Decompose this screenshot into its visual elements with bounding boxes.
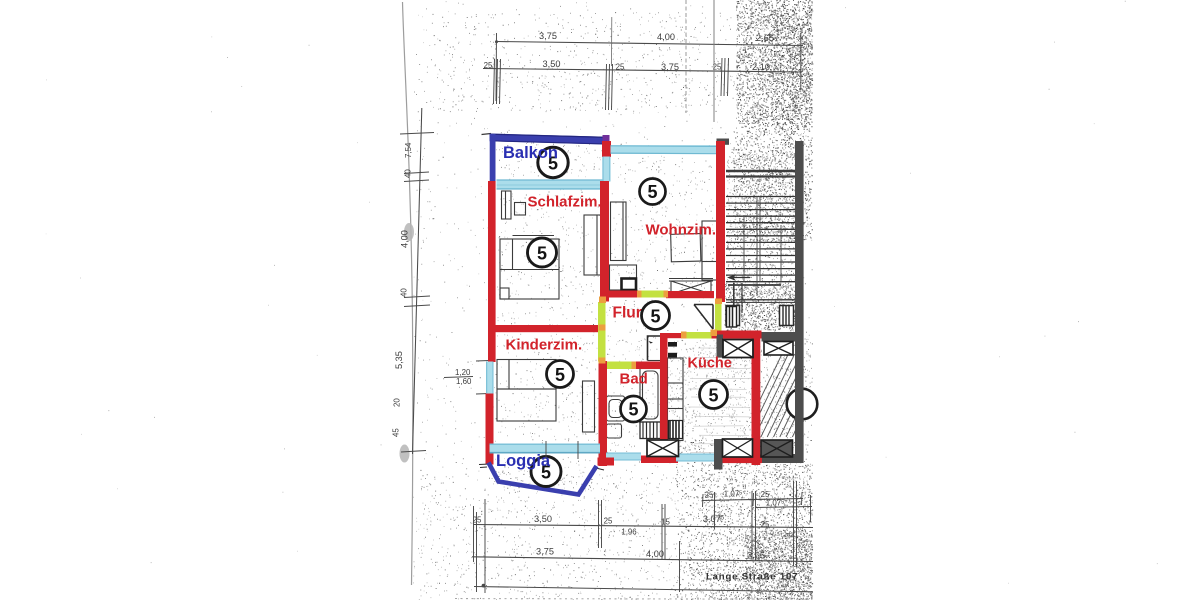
svg-text:Bad: Bad	[620, 371, 648, 388]
svg-text:5: 5	[537, 244, 547, 264]
svg-text:5: 5	[555, 365, 565, 385]
svg-text:1,96: 1,96	[621, 528, 637, 537]
svg-text:2,65: 2,65	[756, 33, 774, 43]
svg-text:Kinderzim.: Kinderzim.	[506, 337, 583, 354]
svg-text:Loggia: Loggia	[496, 452, 551, 470]
svg-text:3,75: 3,75	[536, 547, 554, 557]
svg-text:5: 5	[647, 182, 657, 202]
svg-text:2,65: 2,65	[747, 551, 765, 561]
svg-text:25: 25	[705, 491, 714, 500]
svg-text:4,00: 4,00	[657, 32, 675, 42]
svg-text:Balkon: Balkon	[503, 144, 558, 162]
svg-text:45: 45	[392, 428, 401, 437]
svg-text:5: 5	[650, 307, 660, 327]
svg-text:15: 15	[661, 518, 670, 527]
svg-text:20: 20	[393, 398, 402, 407]
svg-text:3,50: 3,50	[543, 59, 561, 69]
svg-text:Lange Straße 107: Lange Straße 107	[706, 572, 798, 583]
svg-text:5,35: 5,35	[394, 351, 404, 369]
svg-text:25: 25	[604, 517, 613, 526]
svg-text:2,10: 2,10	[752, 62, 770, 72]
svg-text:3,75: 3,75	[661, 62, 679, 72]
svg-text:25: 25	[761, 520, 770, 529]
svg-text:Wohnzim.: Wohnzim.	[646, 222, 717, 239]
svg-text:1,20: 1,20	[455, 368, 471, 377]
svg-text:25: 25	[616, 63, 625, 72]
svg-text:1,60: 1,60	[456, 377, 472, 386]
svg-text:40: 40	[400, 288, 409, 297]
svg-text:Flur: Flur	[613, 305, 642, 322]
svg-text:25: 25	[473, 516, 482, 525]
svg-text:3,50: 3,50	[534, 514, 552, 524]
svg-text:25: 25	[484, 61, 493, 70]
svg-text:4,00: 4,00	[400, 230, 410, 248]
svg-text:40: 40	[404, 169, 413, 178]
svg-text:Schlafzim.: Schlafzim.	[528, 194, 602, 211]
svg-text:5: 5	[708, 386, 718, 406]
svg-text:5: 5	[628, 400, 638, 420]
svg-text:4,00: 4,00	[646, 549, 664, 559]
svg-text:7,54: 7,54	[404, 142, 413, 158]
svg-text:Küche: Küche	[688, 356, 732, 372]
svg-text:3,75: 3,75	[539, 31, 557, 41]
